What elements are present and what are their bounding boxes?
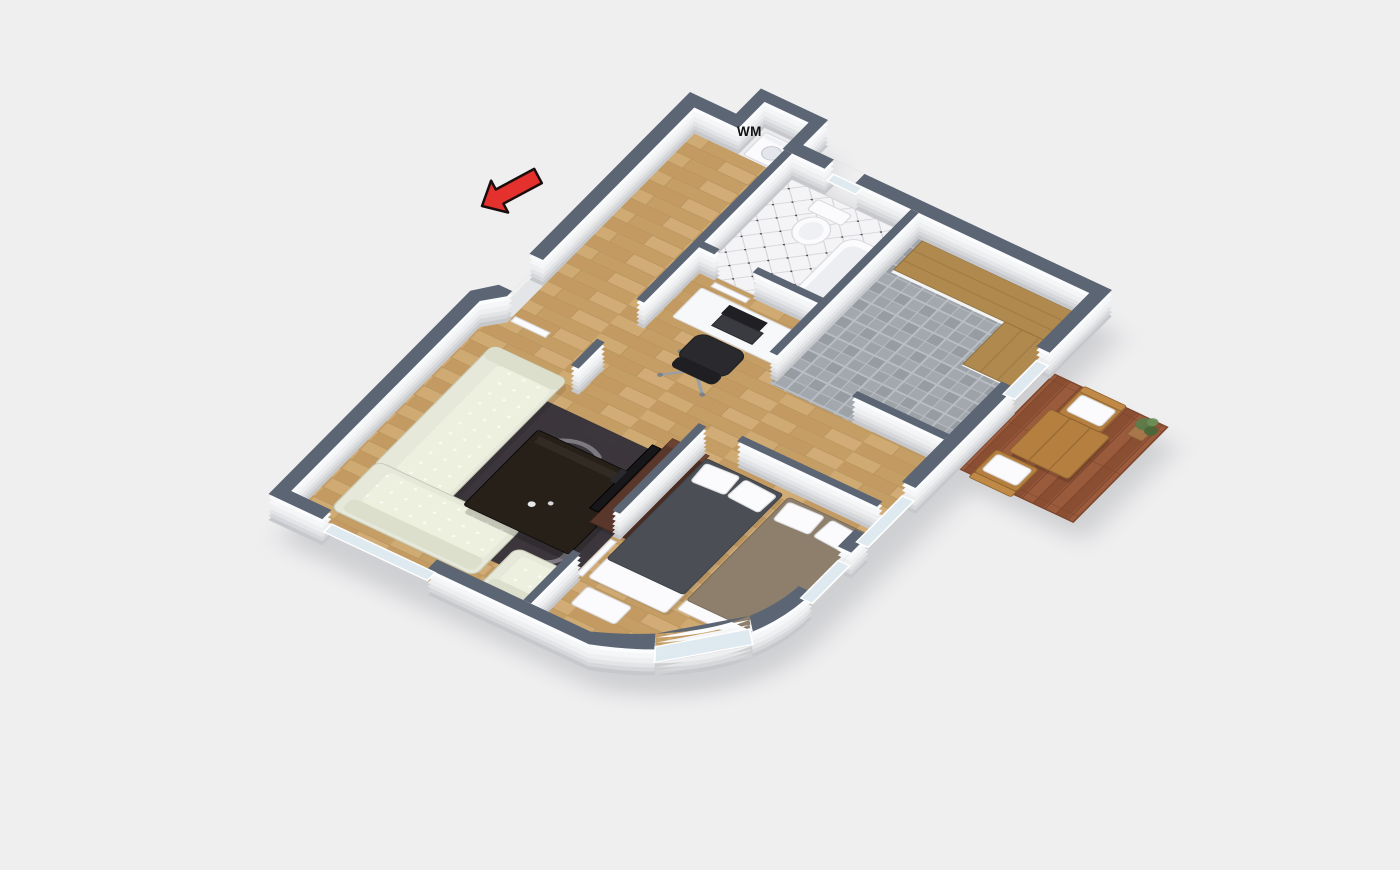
washing-machine-label: WM xyxy=(737,124,762,139)
floor-plan-screenshot: WM xyxy=(0,0,1400,870)
floor-plan-3d: WM xyxy=(0,0,1400,870)
